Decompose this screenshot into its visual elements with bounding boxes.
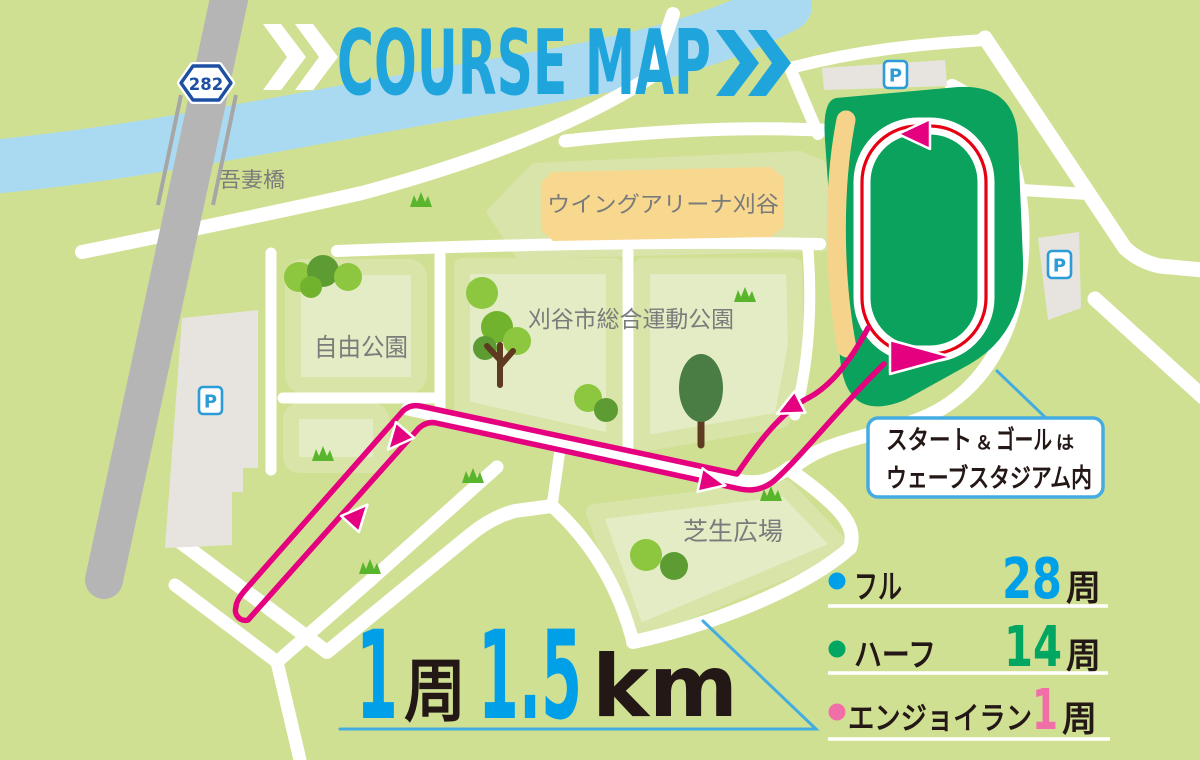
lap-distance: 1.5 — [478, 605, 582, 747]
legend-label: エンジョイラン — [848, 701, 1032, 737]
callout-text: は — [1056, 433, 1074, 454]
grandstand — [836, 120, 847, 348]
bullet-icon — [829, 704, 846, 721]
bullet-icon — [829, 641, 846, 658]
park-block-sports-east — [642, 266, 796, 444]
callout-text: ＆ — [975, 433, 993, 454]
legend-label: フル — [854, 567, 902, 606]
park-block-small — [291, 411, 381, 465]
legend-laps-unit: 周 — [1066, 569, 1101, 609]
legend-laps-unit: 周 — [1062, 700, 1097, 740]
legend-laps: 28 — [1002, 547, 1062, 612]
road — [1022, 190, 1088, 194]
label-arena: ウイングアリーナ刈谷 — [547, 193, 779, 218]
lap-distance-unit: km — [592, 637, 738, 737]
label-jiyu-park: 自由公園 — [314, 333, 408, 362]
route-badge: 282 — [181, 66, 231, 100]
label-lawn-plaza: 芝生広場 — [683, 517, 783, 546]
parking-icon: P — [884, 61, 907, 88]
legend-laps-unit: 周 — [1066, 637, 1101, 677]
callout-text: スタート — [886, 426, 972, 456]
route-badge-number: 282 — [189, 75, 223, 94]
legend-label: ハーフ — [854, 635, 936, 674]
svg-text:P: P — [204, 392, 217, 413]
label-bridge: 吾妻橋 — [219, 168, 285, 192]
callout-text: ウェーブスタジアム内 — [886, 463, 1092, 494]
legend-laps: 1 — [1032, 678, 1058, 743]
parking-icon: P — [199, 387, 222, 414]
bullet-icon — [829, 573, 846, 590]
legend-laps: 14 — [1004, 615, 1062, 680]
title-text: COURSE MAP — [337, 11, 711, 116]
map-canvas: P P P 282 吾妻橋 ウイングアリーナ刈谷 自由公園 刈谷市総合運動公園 … — [0, 0, 1200, 760]
course-map-poster: P P P 282 吾妻橋 ウイングアリーナ刈谷 自由公園 刈谷市総合運動公園 … — [0, 0, 1200, 760]
callout-text: ゴール — [996, 425, 1052, 456]
parking-icon: P — [1048, 251, 1071, 278]
lap-number: 1 — [356, 605, 398, 747]
lap-unit: 周 — [404, 653, 466, 732]
label-sports-park: 刈谷市総合運動公園 — [528, 307, 734, 333]
svg-text:P: P — [1053, 256, 1066, 277]
svg-text:P: P — [889, 66, 902, 87]
